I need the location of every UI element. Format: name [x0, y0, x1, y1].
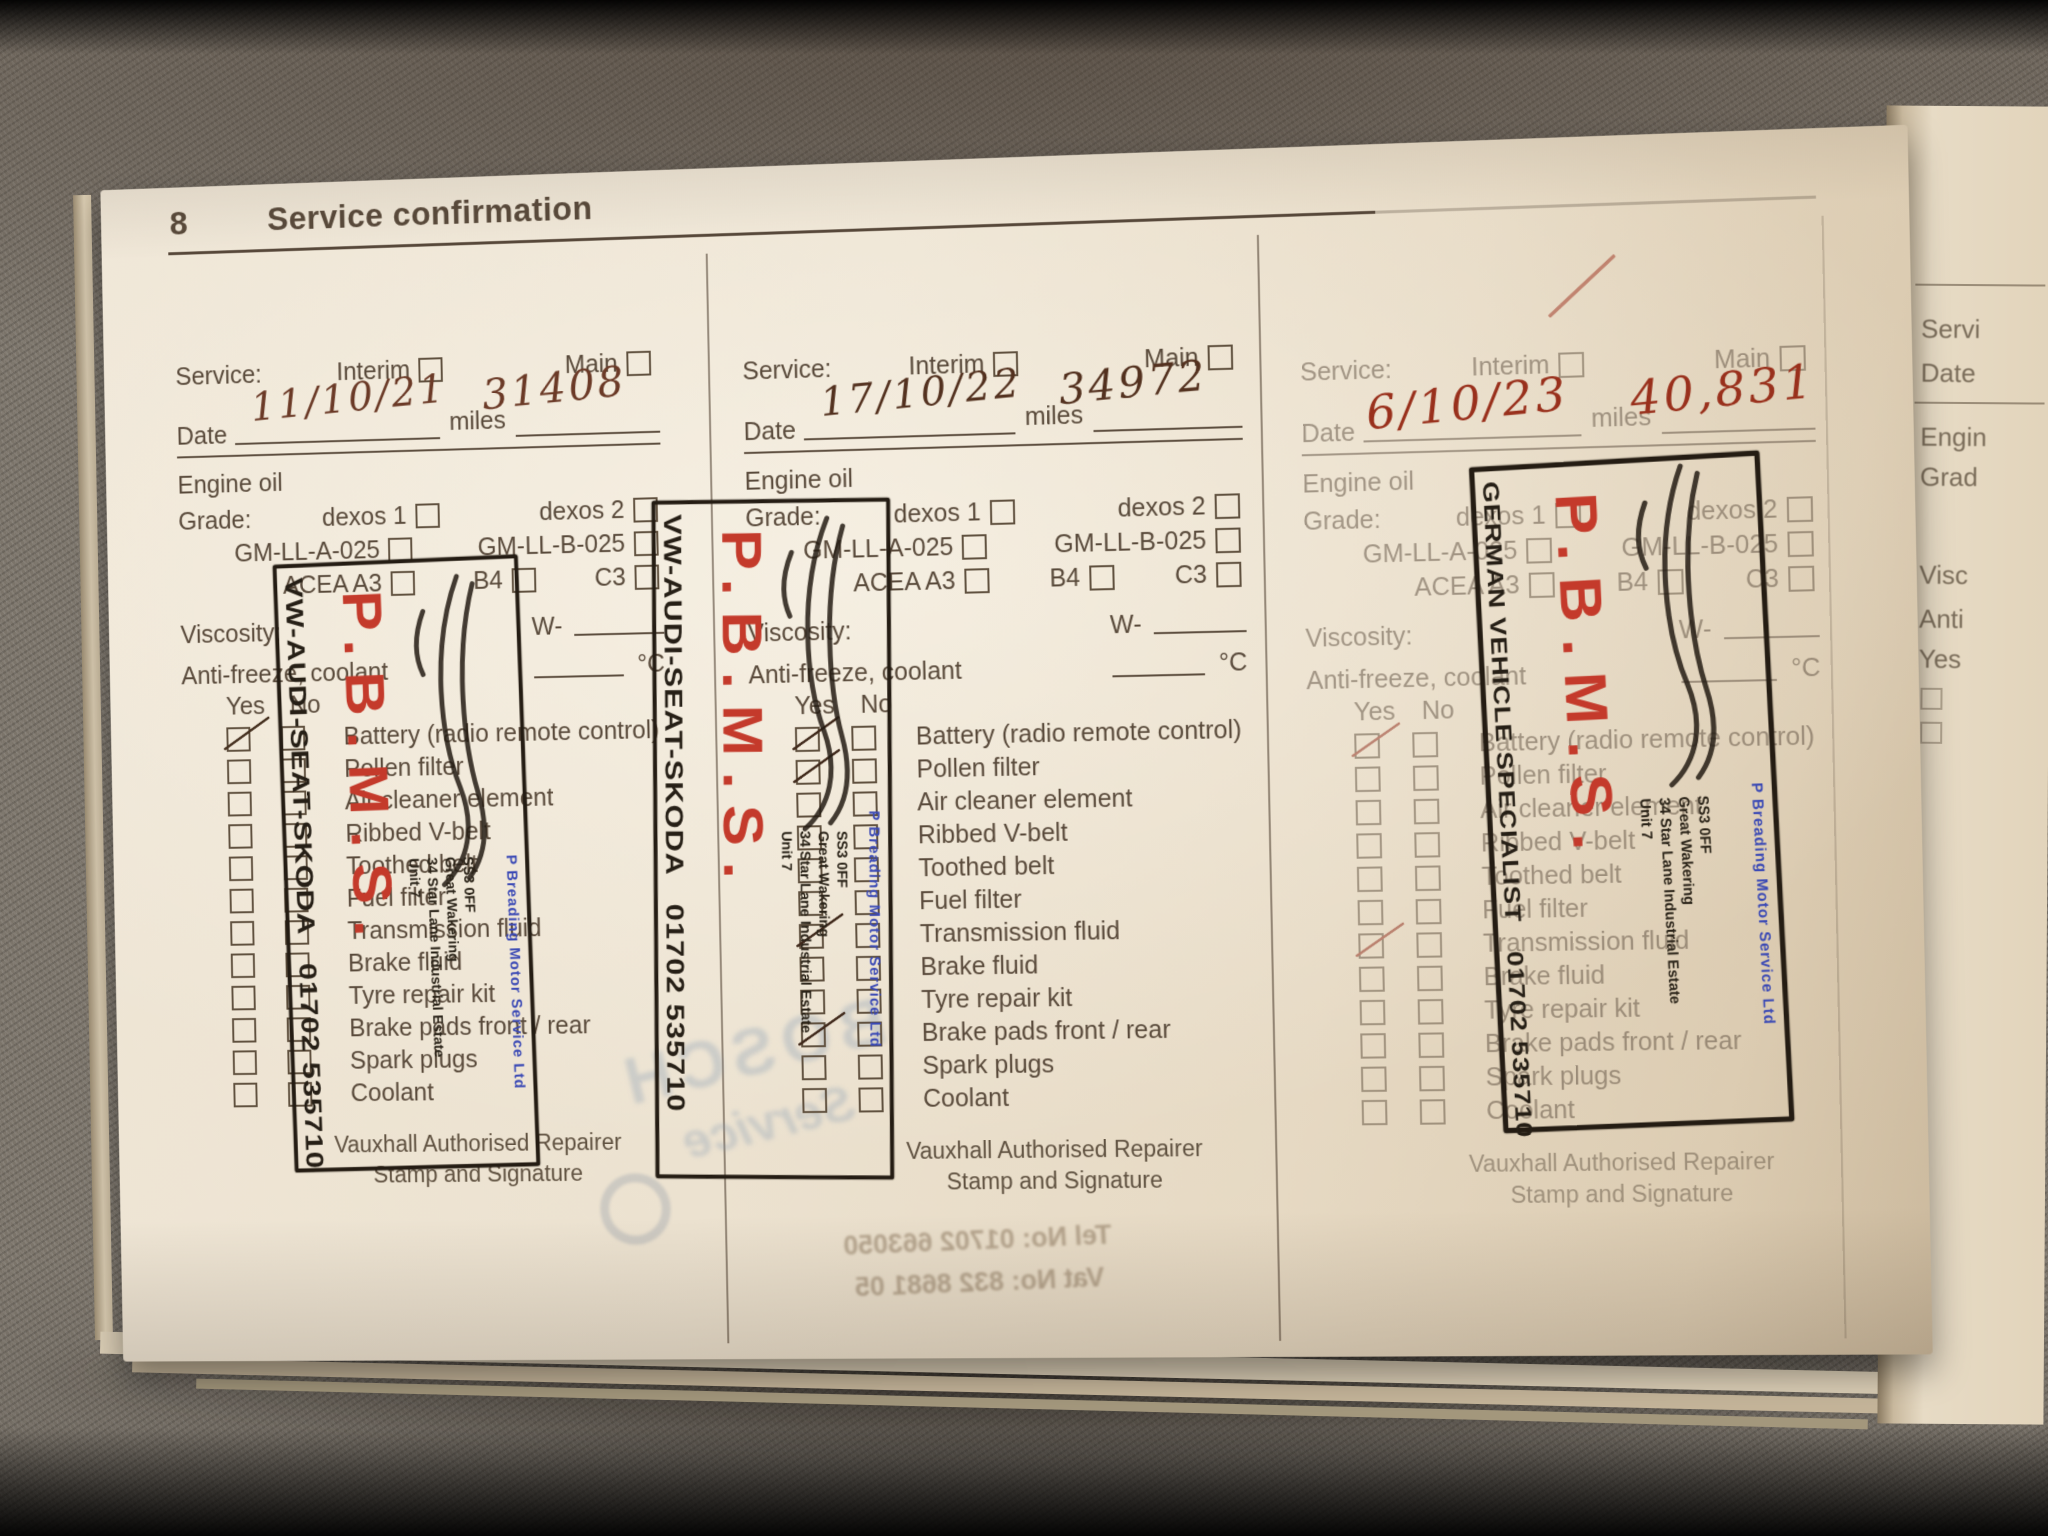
no-label: No [1421, 696, 1454, 726]
stamp-footer-text: Vauxhall Authorised Repairer Stamp and S… [1426, 1145, 1819, 1212]
signature-squiggle [408, 569, 503, 897]
next-page-text: Servi [1921, 314, 1980, 345]
viscosity-line [574, 606, 664, 636]
stamp-signature-label: Stamp and Signature [1426, 1177, 1819, 1212]
pbms-stamp-2: VW-AUDI-SEAT-SKODA01702 535710 P.B.M.S. … [652, 497, 895, 1179]
checklist-item-label: Fuel filter [919, 886, 1022, 917]
yes-checkbox [1362, 1100, 1388, 1126]
stamp-address: Unit 7 34 Star Lane Industrial Estate Gr… [777, 831, 850, 1033]
no-checkbox [1417, 966, 1443, 992]
no-checkbox [1416, 932, 1442, 958]
dexos1-checkbox [989, 499, 1014, 525]
yes-checkbox [1360, 1033, 1386, 1059]
main-checkbox [1207, 344, 1233, 370]
viscosity-label: Viscosity: [180, 619, 281, 650]
form-line [1915, 402, 2045, 405]
column-divider [1257, 235, 1281, 1341]
acea-a3-checkbox [964, 568, 989, 594]
yes-checkbox [230, 921, 254, 946]
stamp-monogram: P.B.M.S. [709, 529, 775, 895]
photo-of-service-book: Servi Date Engin Grad Visc Anti Yes 8 Se… [0, 0, 2048, 1536]
c3-checkbox [1216, 561, 1242, 587]
page-title: Service confirmation [267, 189, 593, 238]
next-page-text: Engin [1920, 422, 1987, 453]
yes-checkbox [233, 1050, 257, 1075]
checklist-item-label: Tyre repair kit [921, 984, 1073, 1015]
stamp-monogram: P.B.M.S. [329, 589, 405, 953]
yes-checkbox [1361, 1066, 1387, 1092]
yes-checkbox [1356, 800, 1382, 826]
yes-checkbox [232, 1018, 256, 1043]
next-page-text: Visc [1919, 560, 1968, 591]
stamp-company: VW-AUDI-SEAT-SKODA [280, 577, 321, 936]
no-checkbox [1419, 1066, 1445, 1092]
checkbox-partial [1920, 722, 1942, 744]
checklist-item-label: Spark plugs [922, 1050, 1054, 1081]
next-page-text: Grad [1920, 462, 1978, 493]
stamp-footer-text: Vauxhall Authorised Repairer Stamp and S… [864, 1133, 1245, 1199]
checklist-item-label: Toothed belt [918, 852, 1054, 883]
yes-checkbox [229, 889, 253, 914]
c3-label: C3 [594, 563, 626, 592]
stamp-address-line: 34 Star Lane Industrial Estate [796, 831, 814, 1033]
yes-checkbox [231, 986, 255, 1011]
dexos2-checkbox [1215, 493, 1241, 519]
dexos2-label: dexos 2 [1117, 492, 1206, 523]
checklist-item-label: Transmission fluid [920, 917, 1121, 949]
stamp-trader-name: P Breading Motor Service Ltd [503, 854, 528, 1089]
b4-label: B4 [1049, 563, 1080, 593]
yes-checkbox [1358, 900, 1384, 926]
grade-label: Grade: [1303, 504, 1413, 536]
stamp-monogram: P.B.M.S. [1541, 491, 1628, 868]
repairer-label: Vauxhall Authorised Repairer [1426, 1145, 1819, 1180]
stamp-phone: 01702 535710 [661, 904, 690, 1113]
repairer-label: Vauxhall Authorised Repairer [864, 1133, 1245, 1168]
signature-squiggle [1628, 458, 1734, 798]
dexos1-checkbox [415, 503, 440, 528]
dexos2-checkbox [1787, 496, 1814, 522]
viscosity-label: Viscosity: [1305, 622, 1413, 654]
w-prefix-label: W- [1110, 610, 1142, 640]
yes-checkbox [1356, 833, 1382, 859]
signature-squiggle [777, 512, 864, 841]
checklist-item-label: Brake fluid [920, 951, 1038, 982]
page-number: 8 [169, 205, 188, 244]
stamp-phone: 01702 535710 [1502, 951, 1537, 1139]
c3-checkbox [1788, 565, 1815, 591]
yes-checkbox [1359, 966, 1385, 992]
stamp-address: Unit 7 34 Star Lane Industrial Estate Gr… [1635, 795, 1721, 1005]
antifreeze-line [534, 649, 624, 679]
no-checkbox [1414, 799, 1440, 825]
w-prefix-label: W- [531, 612, 562, 641]
stamp-trader-name: P Breading Motor Service Ltd [865, 811, 883, 1048]
c3-label: C3 [1175, 560, 1208, 590]
next-page-text: Date [1921, 358, 1976, 389]
stamp-company-text: VW-AUDI-SEAT-SKODA01702 535710 [657, 514, 690, 1112]
yes-checkbox [231, 953, 255, 978]
header-rule [1375, 196, 1816, 214]
stamp-trader-name: P Breading Motor Service Ltd [1748, 782, 1778, 1025]
yes-checkbox [1357, 866, 1383, 892]
date-label: Date [743, 417, 796, 447]
celsius-label: °C [1791, 653, 1821, 683]
interim-tick-mark [1547, 254, 1616, 319]
stamp-address-line: SS3 0FF [833, 831, 851, 1033]
gm-ll-b-checkbox [1215, 527, 1241, 553]
stamp-address-line: Great Wakering [814, 831, 832, 1033]
yes-label: Yes [226, 692, 266, 721]
stamp-signature-label: Stamp and Signature [865, 1164, 1246, 1198]
gm-ll-b-label: GM-LL-B-025 [1054, 526, 1207, 559]
date-label: Date [176, 422, 227, 452]
yes-checkbox [228, 792, 252, 817]
yes-checkbox [227, 759, 251, 784]
checklist-item-label: Air cleaner element [917, 784, 1133, 817]
stamp-address: Unit 7 34 Star Lane Industrial Estate Gr… [405, 856, 483, 1058]
viscosity-line [1153, 604, 1246, 634]
yes-checkbox [233, 1083, 257, 1108]
dexos1-label: dexos 1 [322, 502, 407, 533]
yes-checkbox [1355, 766, 1381, 792]
pbms-stamp-3: GERMAN VEHICLE SPECIALIST01702 535710 P.… [1469, 450, 1795, 1133]
no-checkbox [1415, 865, 1441, 891]
no-checkbox [1413, 765, 1439, 791]
dexos2-label: dexos 2 [539, 496, 625, 527]
main-checkbox [626, 350, 651, 376]
checklist-item-label: Battery (radio remote control) [916, 716, 1242, 752]
yes-label: Yes [1353, 697, 1395, 727]
gm-ll-b-checkbox [1787, 530, 1814, 556]
yes-checkbox [1360, 1000, 1386, 1026]
no-checkbox [1416, 899, 1442, 925]
checkbox-partial [1920, 688, 1942, 710]
no-checkbox [1412, 732, 1438, 758]
next-page-text: Anti [1919, 604, 1964, 635]
form-line [1915, 284, 2045, 287]
dexos1-label: dexos 1 [893, 498, 981, 529]
b4-checkbox [1089, 564, 1115, 590]
celsius-label: °C [1219, 648, 1248, 678]
stamp-phone: 01702 535710 [294, 962, 329, 1169]
antifreeze-line [1112, 647, 1205, 677]
stamp-address-line: Unit 7 [777, 831, 795, 1033]
service-confirmation-page: 8 Service confirmation BOSCH Service Tel… [100, 125, 1932, 1362]
no-checkbox [1418, 999, 1444, 1025]
yes-checkbox [228, 824, 252, 849]
checklist-item-label: Pollen filter [916, 753, 1040, 784]
next-page-text: Yes [1919, 644, 1962, 675]
no-checkbox [1418, 1032, 1444, 1058]
no-checkbox [1414, 832, 1440, 858]
checklist-item-label: Ribbed V-belt [918, 819, 1068, 851]
gm-ll-a-checkbox [962, 534, 987, 560]
grade-label: Grade: [178, 505, 282, 536]
ghost-tel-vat-text: Tel No: 01702 663050 Vat No: 832 8681 05 [739, 1210, 1221, 1313]
stamp-company: VW-AUDI-SEAT-SKODA [658, 514, 688, 876]
pbms-stamp-1: VW-AUDI-SEAT-SKODA01702 535710 P.B.M.S. … [273, 554, 541, 1173]
date-label: Date [1301, 418, 1355, 449]
checklist-item-label: Brake pads front / rear [922, 1016, 1171, 1048]
no-checkbox [1420, 1099, 1446, 1125]
yes-checkbox [229, 856, 253, 881]
checklist-item-label: Coolant [923, 1084, 1009, 1114]
